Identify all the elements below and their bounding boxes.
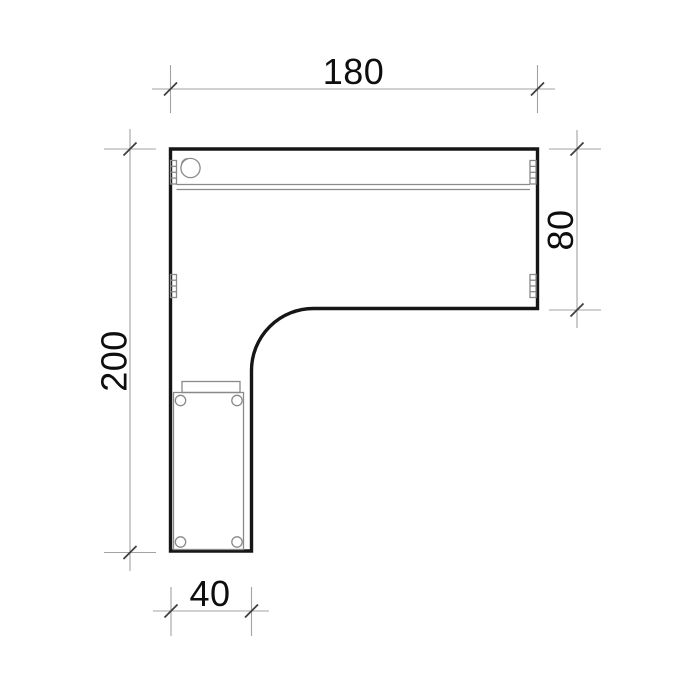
technical-drawing-page: 180 40 200 80 (0, 0, 700, 700)
dim-label-top: 180 (323, 51, 385, 92)
dim-label-right: 80 (540, 209, 581, 250)
dimension-labels: 180 40 200 80 (94, 51, 582, 614)
dim-label-bottom: 40 (189, 573, 230, 614)
desk-plan-drawing: 180 40 200 80 (0, 0, 700, 700)
desk-outline (171, 149, 538, 551)
dim-label-left: 200 (94, 330, 135, 392)
desk-outline-group (171, 149, 538, 551)
